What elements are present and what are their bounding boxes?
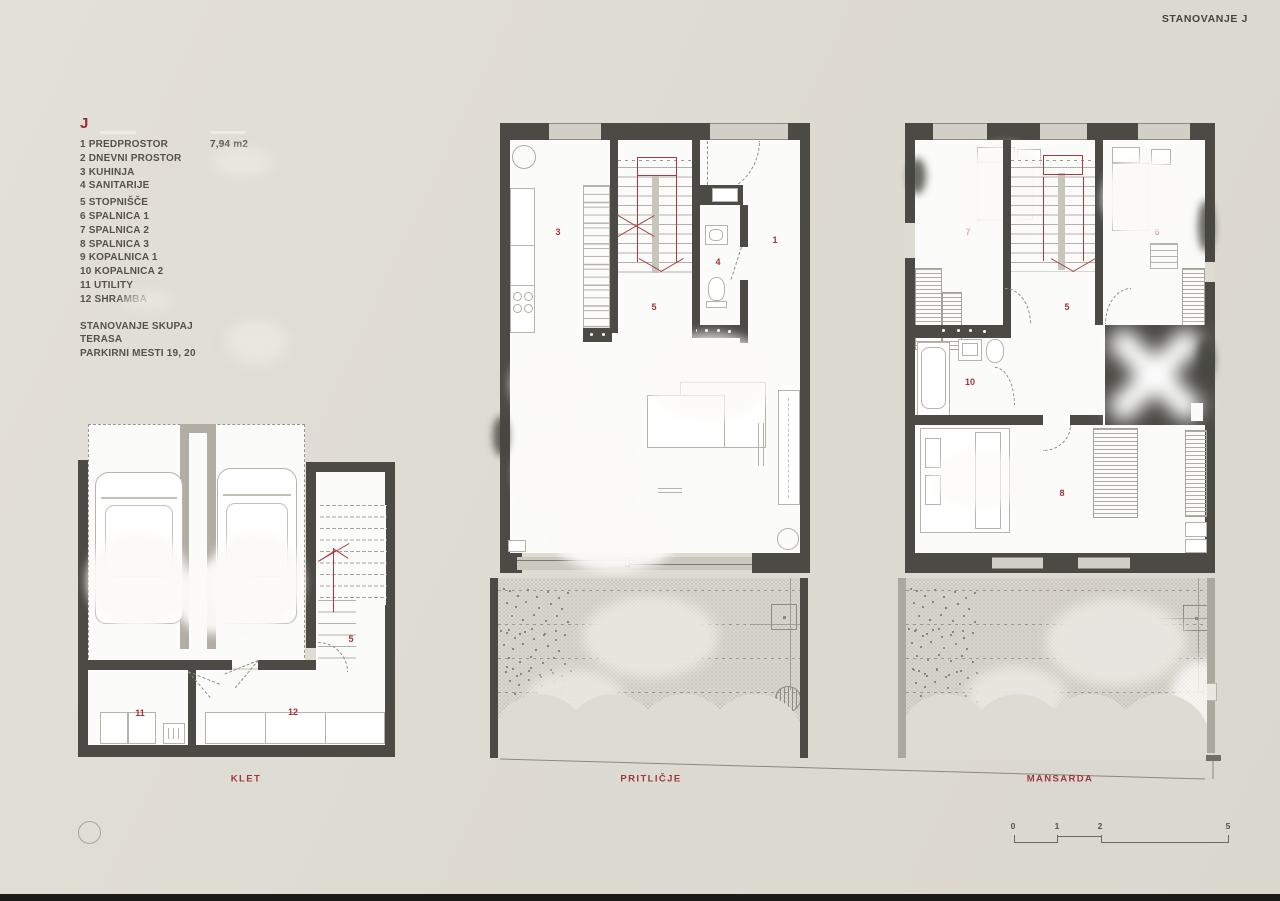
wall-dot	[942, 329, 945, 332]
plan-label-pritlicje: PRITLIČJE	[620, 774, 681, 785]
dark-blur	[493, 416, 509, 456]
blur-smudge	[213, 148, 273, 176]
legend-label: 4 SANITARIJE	[80, 180, 210, 194]
wall-segment	[915, 325, 1011, 338]
legend-label: 8 SPALNICA 3	[80, 239, 210, 253]
to ilet-icon	[986, 339, 1004, 363]
scale-tick-1: 1	[1055, 821, 1060, 831]
plan-label-klet: KLET	[231, 774, 261, 785]
blur-smudge	[933, 450, 1025, 508]
legend-label: PARKIRNI MESTI 19, 20	[80, 348, 210, 362]
blur-smudge	[1046, 598, 1186, 686]
dark-room	[1105, 325, 1205, 425]
north-circle-icon	[78, 821, 101, 844]
wall-segment	[905, 553, 1215, 573]
room-number-bedroom2: 7	[965, 227, 970, 237]
bathtub-inner	[921, 347, 946, 409]
wall-segment	[740, 205, 748, 247]
wall-segment	[913, 415, 1011, 425]
leader-line	[488, 750, 1233, 790]
planter-icon	[1183, 605, 1207, 631]
counter-divider	[510, 245, 535, 246]
tall-cabinets	[583, 185, 610, 330]
blur-smudge	[87, 532, 189, 630]
scale-tick-5: 5	[1226, 821, 1231, 831]
legend-label: 5 STOPNIŠČE	[80, 197, 210, 211]
appliance-grill	[168, 728, 180, 739]
wall-dot	[969, 329, 972, 332]
terrace-grid-line	[790, 578, 791, 690]
wall-segment	[610, 140, 618, 333]
blur-smudge	[173, 562, 257, 634]
vegetation	[912, 668, 914, 670]
bottom-bar	[0, 894, 1280, 901]
legend-label: 2 DNEVNI PROSTOR	[80, 153, 210, 167]
planter-dot	[1195, 617, 1198, 620]
terrace-dashed-line	[906, 590, 1207, 591]
plan-label-mansarda: MANSARDA	[1027, 774, 1094, 785]
legend-row: 6 SPALNICA 1	[80, 211, 248, 225]
legend-row: 11 UTILITY	[80, 280, 248, 294]
vegetation	[910, 588, 912, 590]
legend-row: 7 SPALNICA 2	[80, 225, 248, 239]
wall-opening	[1205, 262, 1215, 282]
washbasin-icon	[958, 339, 982, 361]
stair-red-rail	[637, 176, 638, 262]
plan-sheet: STANOVANJE J J 1 PREDPROSTOR7,94 m2 2 DN…	[0, 0, 1280, 901]
wall-segment	[752, 553, 810, 573]
room-number-utility: 11	[135, 708, 145, 718]
blur-smudge	[645, 332, 775, 420]
terrace	[906, 578, 1207, 760]
wall-segment	[78, 745, 395, 757]
table-line	[658, 492, 682, 493]
sink-icon	[512, 145, 536, 169]
room-number-stairs: 5	[1064, 302, 1069, 312]
legend-summary-row: PARKIRNI MESTI 19, 20	[80, 348, 248, 362]
wall-segment	[500, 123, 510, 573]
burner-icon	[513, 292, 522, 301]
wall-segment	[1070, 415, 1103, 425]
shelf-box	[1185, 539, 1207, 553]
wall-segment	[583, 328, 612, 342]
redacted-strip	[210, 131, 246, 134]
terrace-dashed-line	[498, 590, 800, 591]
blur-smudge	[515, 428, 635, 520]
room-number-stairs: 5	[348, 634, 353, 644]
wall-dot	[590, 333, 593, 336]
legend-summary-row: STANOVANJE SKUPAJ	[80, 321, 248, 335]
scale-tick-0: 0	[1011, 821, 1016, 831]
window	[992, 557, 1043, 569]
legend-label: 7 SPALNICA 2	[80, 225, 210, 239]
counter-divider	[510, 285, 535, 286]
stair-red-rail	[676, 176, 677, 262]
room-number-hall: 1	[772, 235, 777, 245]
legend-label: 10 KOPALNICA 2	[80, 266, 210, 280]
stair-red-rail	[1083, 177, 1084, 261]
terrace-wall	[1207, 578, 1215, 753]
legend-row: 5 STOPNIŠČE	[80, 197, 248, 211]
legend-row: 9 KOPALNICA 1	[80, 252, 248, 266]
burner-icon	[524, 304, 533, 313]
room-number-storage: 12	[288, 707, 298, 717]
wall-segment	[78, 460, 88, 757]
unit-letter: J	[80, 115, 88, 132]
legend-row: 8 SPALNICA 3	[80, 239, 248, 253]
wall-segment	[306, 462, 316, 648]
room-number-stairs: 5	[651, 302, 656, 312]
wall-opening	[905, 223, 915, 258]
basin-bowl	[962, 343, 978, 356]
burner-icon	[524, 292, 533, 301]
terrace-wall	[898, 578, 906, 758]
shelf-unit	[1150, 243, 1178, 269]
wall-segment	[306, 462, 395, 472]
blur-smudge	[1103, 158, 1185, 238]
legend-label: 3 KUHINJA	[80, 167, 210, 181]
toilet-cistern	[706, 301, 727, 308]
shelf-box	[1185, 522, 1207, 537]
shelf-zigzag	[788, 398, 789, 498]
legend-label: 11 UTILITY	[80, 280, 210, 294]
legend-label: 9 KOPALNICA 1	[80, 252, 210, 266]
stair-red-rail	[1043, 177, 1044, 261]
appliance-icon	[163, 723, 185, 744]
room-number-bedroom3: 8	[1059, 488, 1064, 498]
legend-label: STANOVANJE SKUPAJ	[80, 321, 210, 335]
wall-segment	[692, 140, 700, 333]
wall-dot	[728, 330, 731, 333]
shelf-unit	[778, 390, 800, 505]
legend-label: 1 PREDPROSTOR	[80, 139, 210, 153]
blur-smudge	[226, 320, 288, 364]
stair-red-outline	[1043, 155, 1083, 175]
dark-blur	[1198, 338, 1214, 380]
scale-bar-segment	[1014, 835, 1058, 843]
scale-bar-segment	[1058, 836, 1101, 837]
legend-summary-row: TERASA	[80, 334, 248, 348]
floor-box	[508, 540, 526, 552]
car-windshield	[101, 497, 177, 499]
redacted-strip	[100, 131, 136, 134]
vegetation	[506, 666, 508, 668]
window	[933, 123, 987, 140]
stair-red-outline	[637, 157, 677, 176]
console-line	[763, 423, 764, 466]
wall-dot	[602, 333, 605, 336]
blur-smudge	[510, 348, 594, 420]
wall-dot	[957, 329, 960, 332]
console-line	[758, 423, 759, 466]
car-windshield	[223, 494, 291, 496]
wall-dot	[983, 330, 986, 333]
vegetation	[500, 630, 502, 632]
wardrobe-hatched	[1185, 430, 1207, 517]
vegetation	[503, 588, 505, 590]
stair-direction-arrow	[333, 548, 334, 612]
blur-smudge	[122, 293, 174, 309]
bathtub-icon	[917, 342, 950, 416]
dark-blur	[1198, 200, 1214, 252]
toilet-icon	[708, 277, 725, 301]
basin-bowl	[709, 229, 723, 241]
wall-segment	[1010, 415, 1043, 425]
floor-plan-klet: 5 11 12	[75, 420, 397, 765]
sheet-title: STANOVANJE J	[1162, 13, 1248, 25]
window	[1078, 557, 1130, 569]
window	[1138, 123, 1190, 140]
wall-segment	[258, 660, 316, 670]
stair-stringer	[1058, 173, 1065, 270]
wall-segment	[88, 660, 232, 670]
washer-icon	[100, 712, 128, 744]
table-icon	[777, 528, 799, 550]
floor-plan-mansarda: 7 5 6 10	[895, 120, 1225, 765]
room-number-wc: 4	[715, 257, 720, 267]
burner-icon	[513, 304, 522, 313]
planter-dot	[783, 616, 786, 619]
dark-room-niche	[1191, 403, 1203, 421]
wall-segment	[800, 123, 810, 573]
terrace-wall	[490, 578, 498, 758]
terrace-wall	[800, 578, 808, 758]
scale-tick-2: 2	[1098, 821, 1103, 831]
fixture-icon	[712, 188, 738, 202]
legend-row: 10 KOPALNICA 2	[80, 266, 248, 280]
vegetation	[908, 628, 910, 630]
shelf-divider	[265, 712, 266, 744]
terrace	[498, 578, 800, 760]
dark-blur	[908, 158, 926, 194]
floor-plan-pritlicje: 3 5 1 4	[495, 120, 815, 765]
blur-smudge	[583, 596, 718, 678]
window	[549, 123, 601, 140]
washbasin-icon	[705, 225, 728, 245]
window	[710, 123, 788, 140]
blur-smudge	[555, 508, 675, 572]
legend-label: 6 SPALNICA 1	[80, 211, 210, 225]
wardrobe-hatched	[1093, 428, 1138, 518]
scale-bar-segment	[1101, 835, 1229, 843]
wall-segment	[1095, 140, 1103, 325]
legend-row: 4 SANITARIJE	[80, 180, 248, 194]
stair-stringer	[652, 175, 659, 273]
shelf-divider	[325, 712, 326, 744]
table-line	[658, 488, 682, 489]
room-number-kitchen: 3	[555, 227, 560, 237]
room-number-bathroom2: 10	[965, 377, 975, 387]
window	[1040, 123, 1087, 140]
legend-label: TERASA	[80, 334, 210, 348]
planter-icon	[771, 604, 797, 630]
